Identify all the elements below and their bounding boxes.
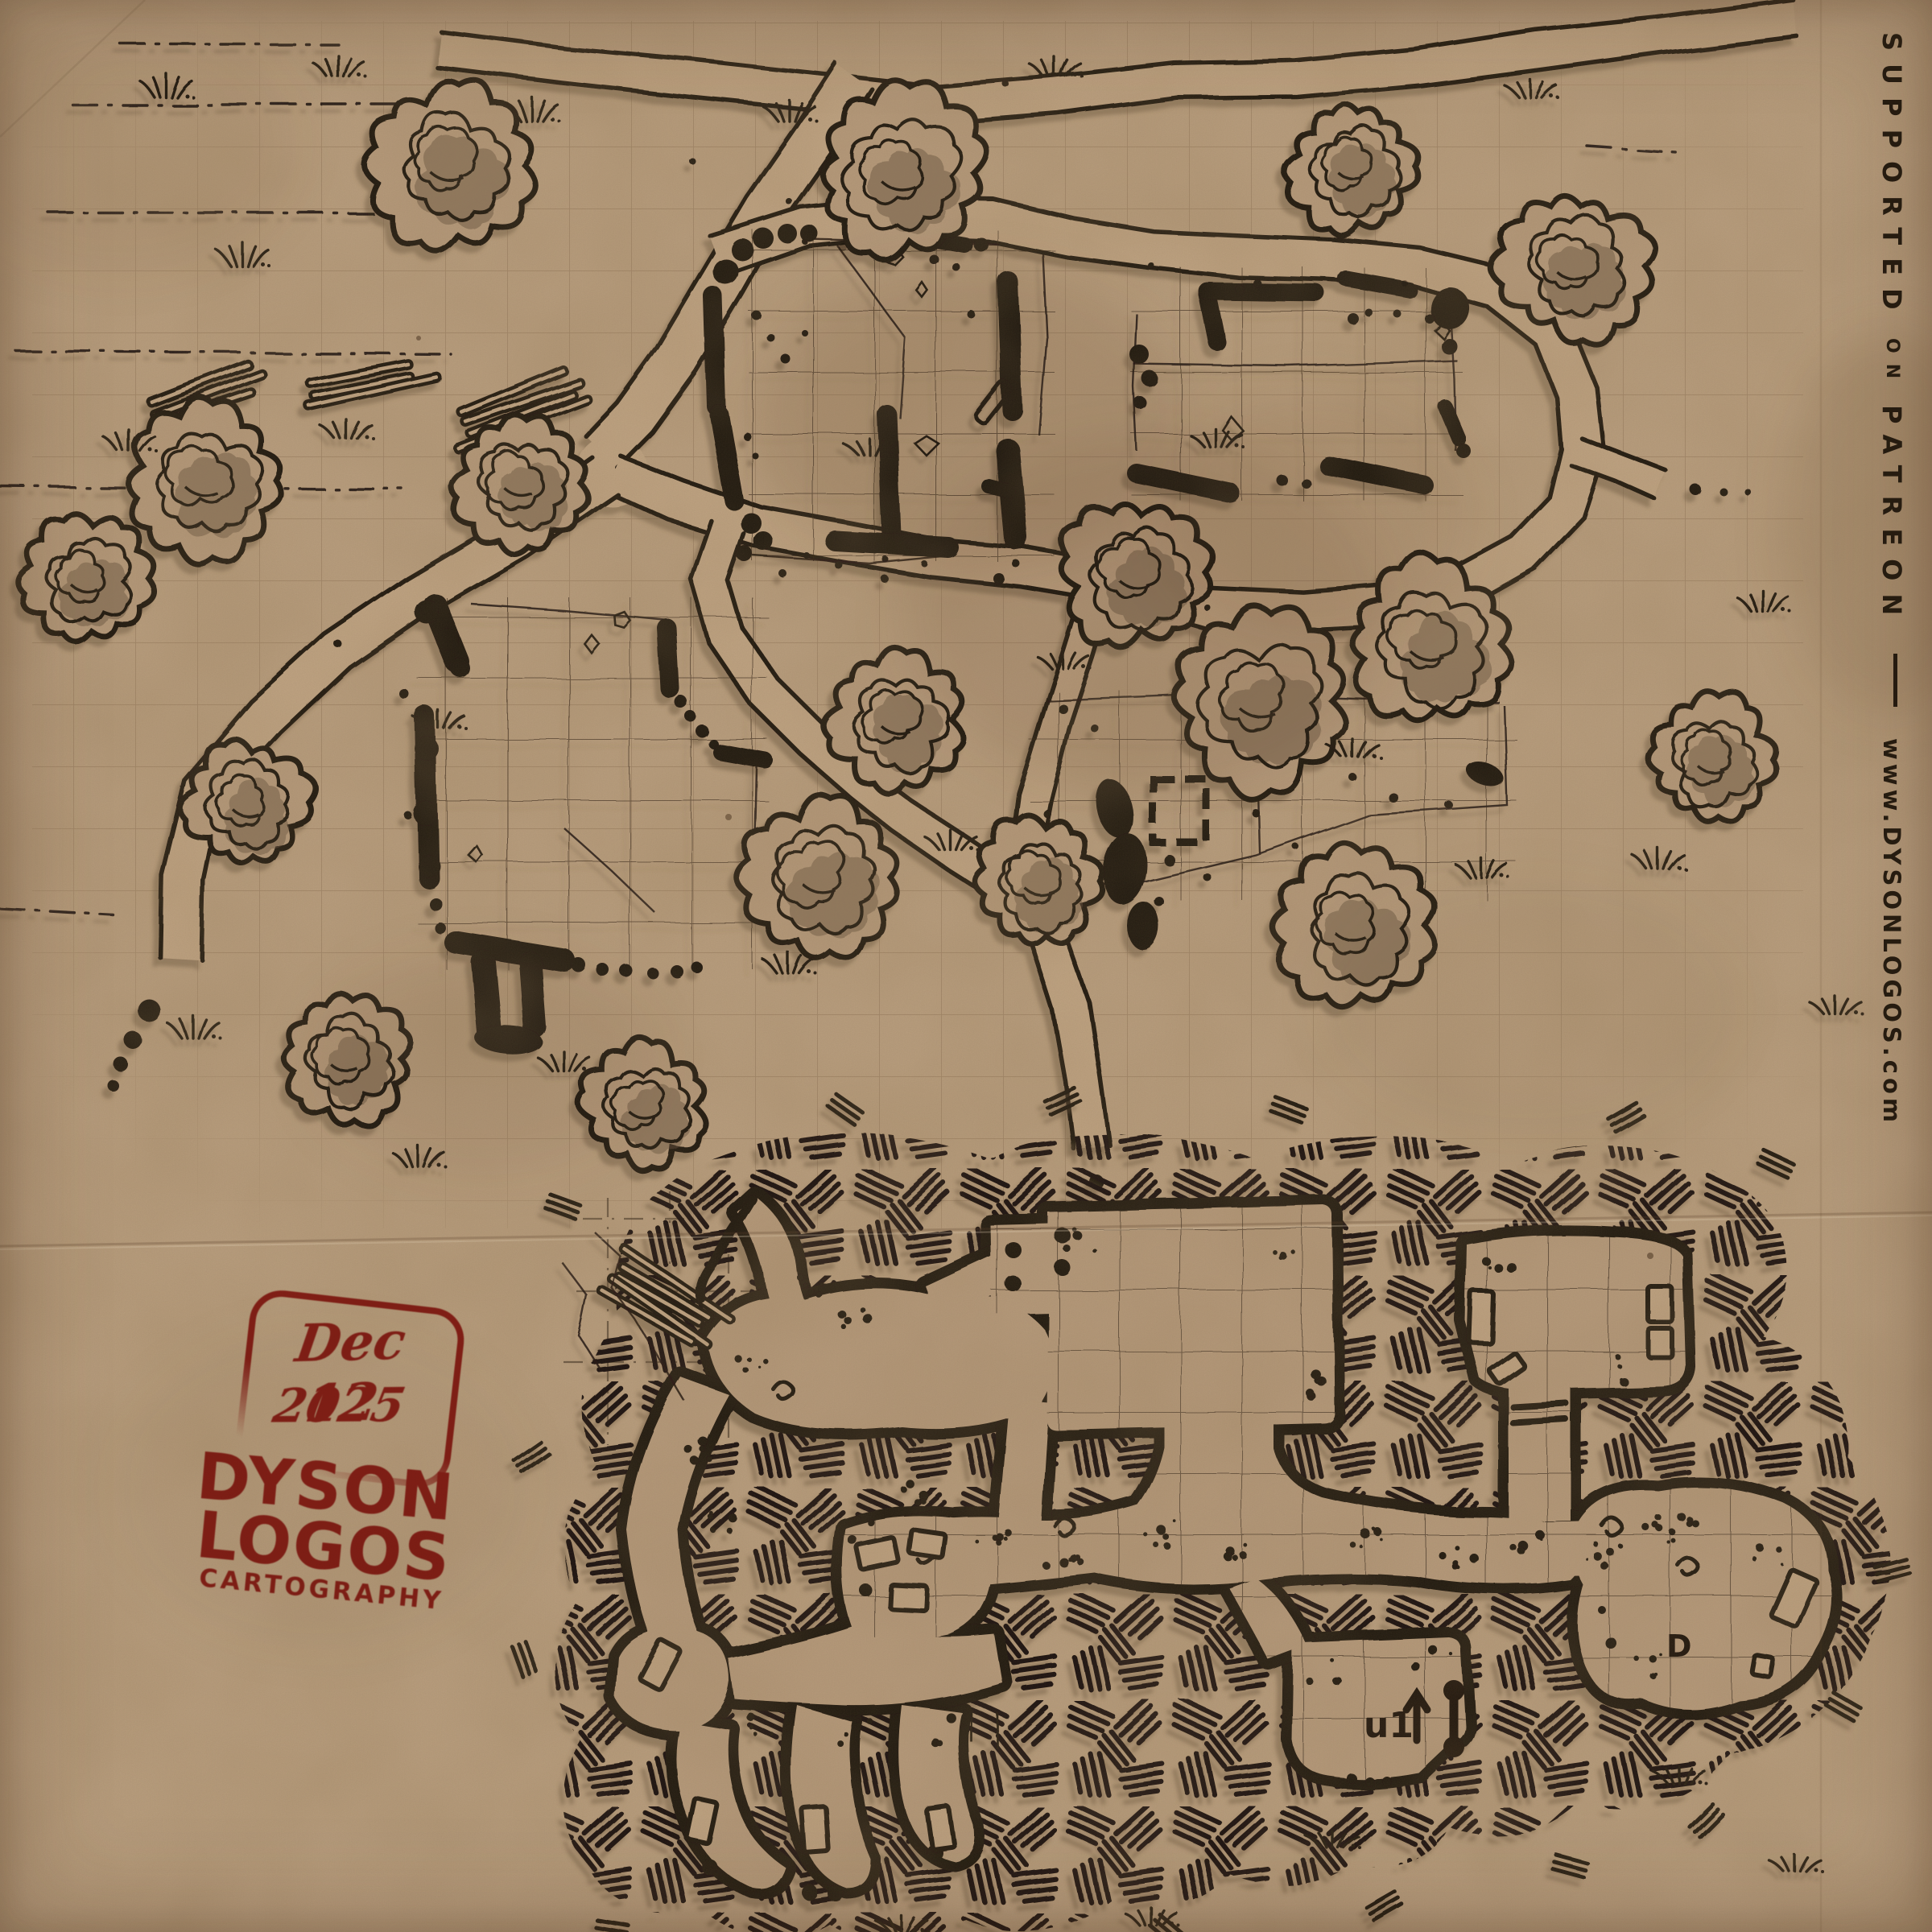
sidebar-supported-text: SUPPORTED: [1871, 32, 1913, 323]
sidebar-url-text[interactable]: www.DYSONLOGOS.com: [1871, 738, 1913, 1126]
parchment-sheet: u1 D SUPPORTED ON PATREON www.DYSONLOGOS…: [0, 0, 1932, 1932]
paper-grain-texture: [0, 0, 1932, 1932]
stamp-year: 2025: [241, 1377, 437, 1434]
map-artwork: u1 D: [0, 0, 1932, 1932]
sidebar-on-text: ON: [1871, 338, 1913, 389]
sidebar-patreon-text: PATREON: [1871, 405, 1913, 628]
artist-date-stamp: Dec 12 2025 DYSON LOGOS CARTOGRAPHY: [171, 1281, 502, 1650]
patreon-credit-sidebar: SUPPORTED ON PATREON www.DYSONLOGOS.com: [1871, 32, 1913, 1240]
sidebar-divider-bar: [1893, 654, 1897, 707]
